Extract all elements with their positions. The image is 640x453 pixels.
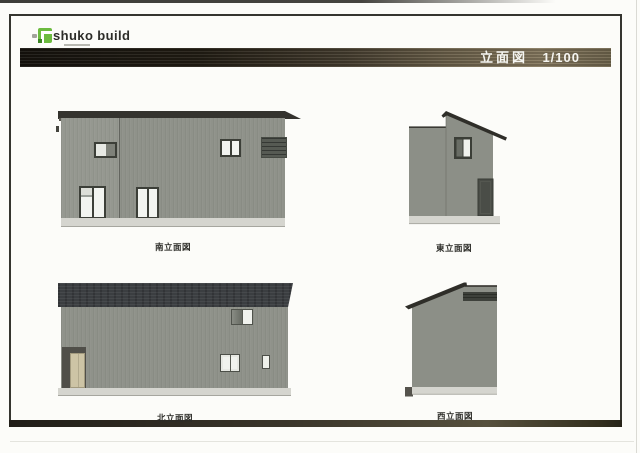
sheet-scale: 1/100: [542, 50, 580, 65]
west-elevation-label: 西立面図: [405, 410, 505, 422]
window-pane: [457, 140, 463, 157]
window-pane: [96, 144, 106, 156]
south-window-lower-middle: [136, 187, 159, 219]
door-panel-line: [78, 354, 79, 387]
south-vent-louver: [261, 137, 287, 158]
north-elevation-label: 北立面図: [125, 412, 225, 424]
title-bar: 立面図 1/100: [20, 48, 611, 67]
west-elevation-drawing: 西立面図: [400, 278, 510, 428]
window-mullion: [92, 188, 94, 217]
west-vent-louver: [463, 292, 497, 301]
logo-notch: [38, 39, 42, 43]
east-elevation-label: 東立面図: [404, 242, 504, 254]
window-mullion: [242, 310, 243, 324]
north-elevation-drawing: 北立面図: [56, 280, 306, 425]
south-window-upper-middle: [220, 139, 241, 157]
north-roof-surface: [58, 283, 293, 307]
east-section-corner-line: [446, 114, 447, 216]
scanned-elevation-sheet: { "logo": { "brand": "shuko build", "ico…: [0, 0, 640, 453]
north-foundation: [58, 388, 291, 396]
north-entry-door: [70, 353, 85, 388]
north-facade: [61, 307, 288, 388]
north-window-upper-right: [231, 309, 253, 325]
west-elevation-svg: [400, 278, 510, 400]
east-ground-line: [409, 223, 500, 224]
window-mullion: [147, 189, 149, 217]
scan-bottom-edge-line: [10, 441, 634, 442]
east-elevation-drawing: 東立面図: [403, 100, 513, 255]
window-pane: [464, 140, 471, 157]
west-ground-line: [412, 394, 497, 395]
east-low-roof-edge: [409, 126, 446, 128]
south-elevation-drawing: 南立面図: [56, 108, 306, 253]
sheet-title: 立面図: [480, 50, 528, 65]
window-mullion: [230, 141, 232, 155]
scan-right-edge-line: [636, 0, 637, 453]
west-flat-roof-edge: [465, 285, 497, 287]
window-pane: [232, 310, 242, 324]
shuko-build-logo-icon: [38, 28, 52, 43]
south-elevation-label: 南立面図: [123, 241, 223, 253]
west-foundation: [412, 387, 497, 395]
south-window-upper-left: [94, 142, 117, 158]
logo-g-glyph: [41, 31, 52, 46]
east-facade-low-section: [409, 127, 446, 216]
window-mullion: [230, 355, 231, 371]
south-wall-fixture: [56, 126, 59, 132]
north-window-lower-middle: [220, 354, 240, 372]
scan-top-edge-line: [0, 0, 556, 3]
east-elevation-svg: [403, 100, 513, 230]
south-sliding-door: [79, 186, 106, 219]
logo-small-mark: [32, 34, 37, 38]
logo-tagline-line: [64, 44, 90, 46]
logo-brand-text: shuko build: [53, 28, 130, 43]
west-meter-box: [405, 387, 413, 397]
south-foundation: [61, 218, 285, 227]
east-window: [454, 137, 472, 159]
east-foundation: [409, 216, 500, 224]
window-pane: [106, 144, 116, 156]
north-window-narrow: [262, 355, 270, 369]
